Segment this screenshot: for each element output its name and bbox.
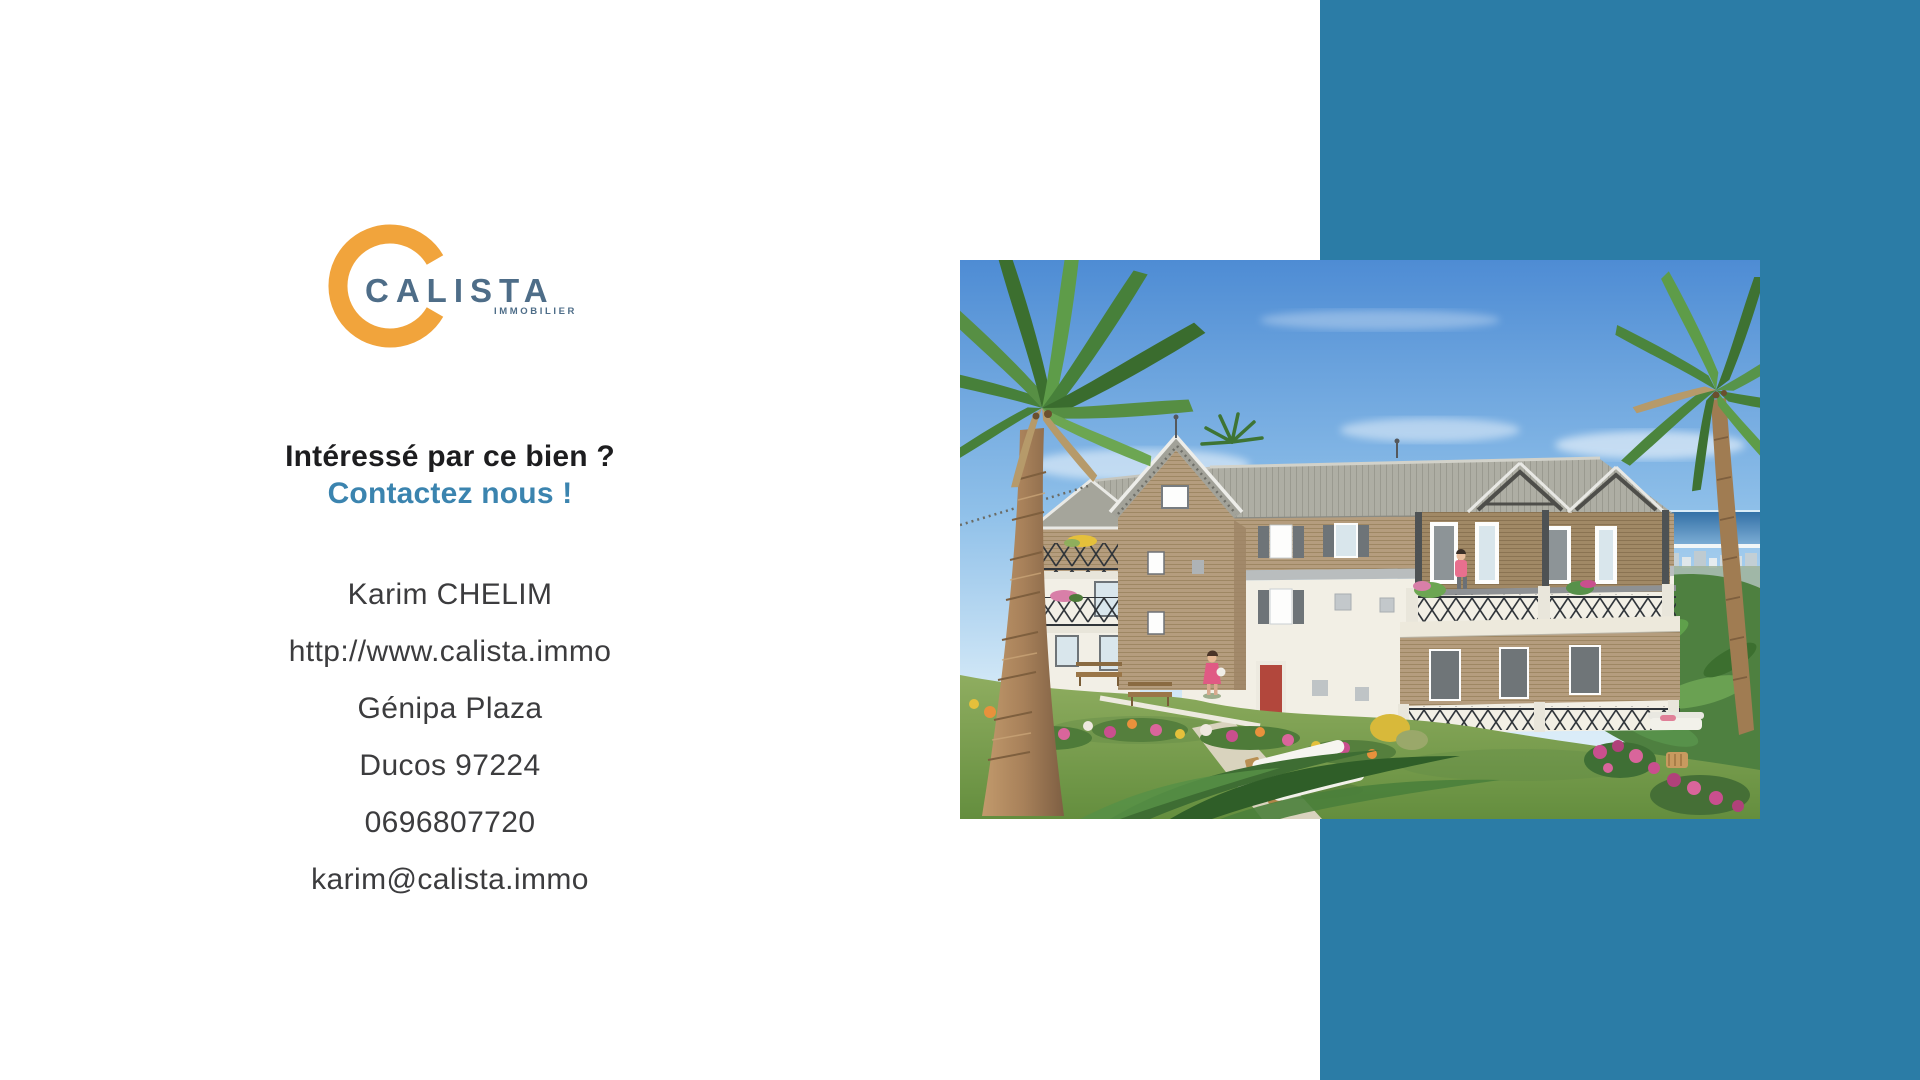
brand-logo: CALISTA IMMOBILIER — [325, 220, 580, 370]
contact-email: karim@calista.immo — [0, 851, 900, 908]
contact-address-line2: Ducos 97224 — [0, 737, 900, 794]
contact-address-line1: Génipa Plaza — [0, 680, 900, 737]
cta-block: Intéressé par ce bien ? Contactez nous ! — [0, 438, 900, 512]
contact-panel: CALISTA IMMOBILIER Intéressé par ce bien… — [0, 0, 900, 1080]
cta-subheading: Contactez nous ! — [0, 476, 900, 512]
brand-tagline: IMMOBILIER — [494, 306, 577, 317]
brand-name: CALISTA — [365, 272, 555, 310]
property-rendering-image — [960, 260, 1760, 819]
page: CALISTA IMMOBILIER Intéressé par ce bien… — [0, 0, 1920, 1080]
contact-name: Karim CHELIM — [0, 566, 900, 623]
contact-website: http://www.calista.immo — [0, 623, 900, 680]
cta-heading: Intéressé par ce bien ? — [0, 438, 900, 476]
contact-details: Karim CHELIM http://www.calista.immo Gén… — [0, 566, 900, 908]
contact-phone: 0696807720 — [0, 794, 900, 851]
